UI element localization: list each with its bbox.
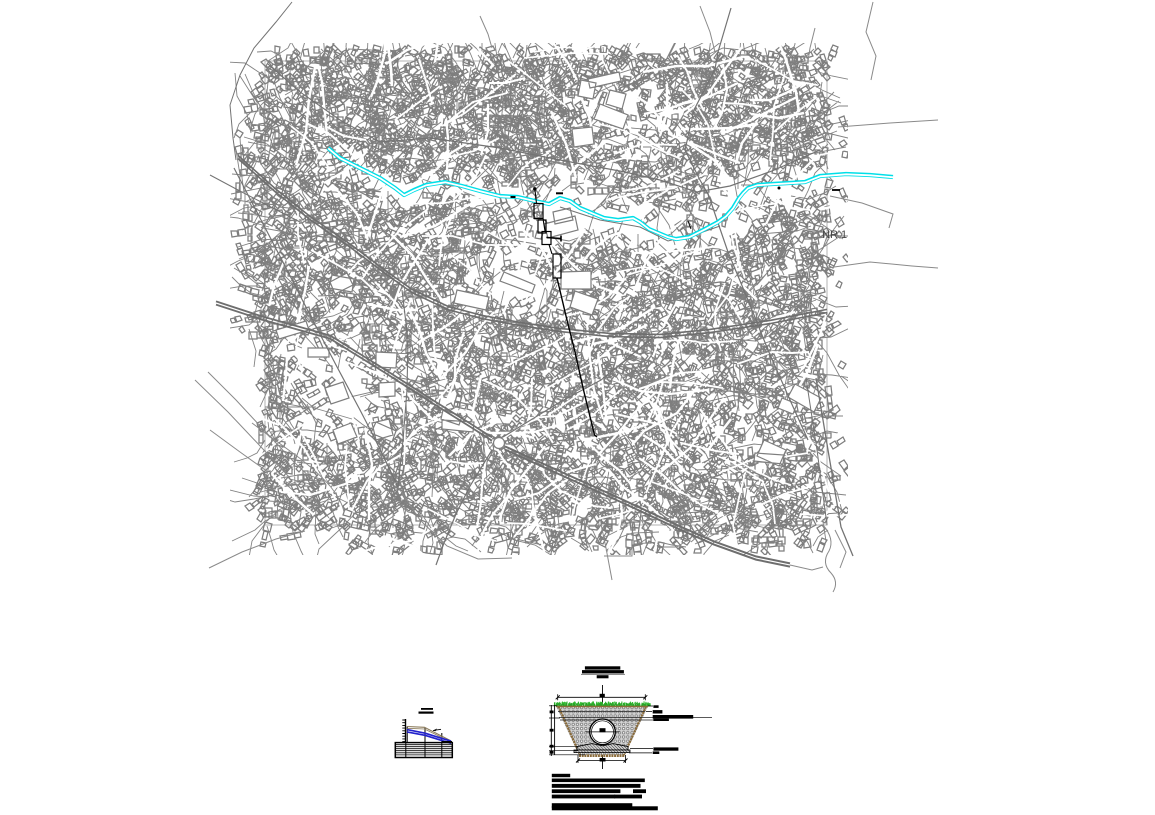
svg-text:NR 1: NR 1: [822, 229, 847, 241]
